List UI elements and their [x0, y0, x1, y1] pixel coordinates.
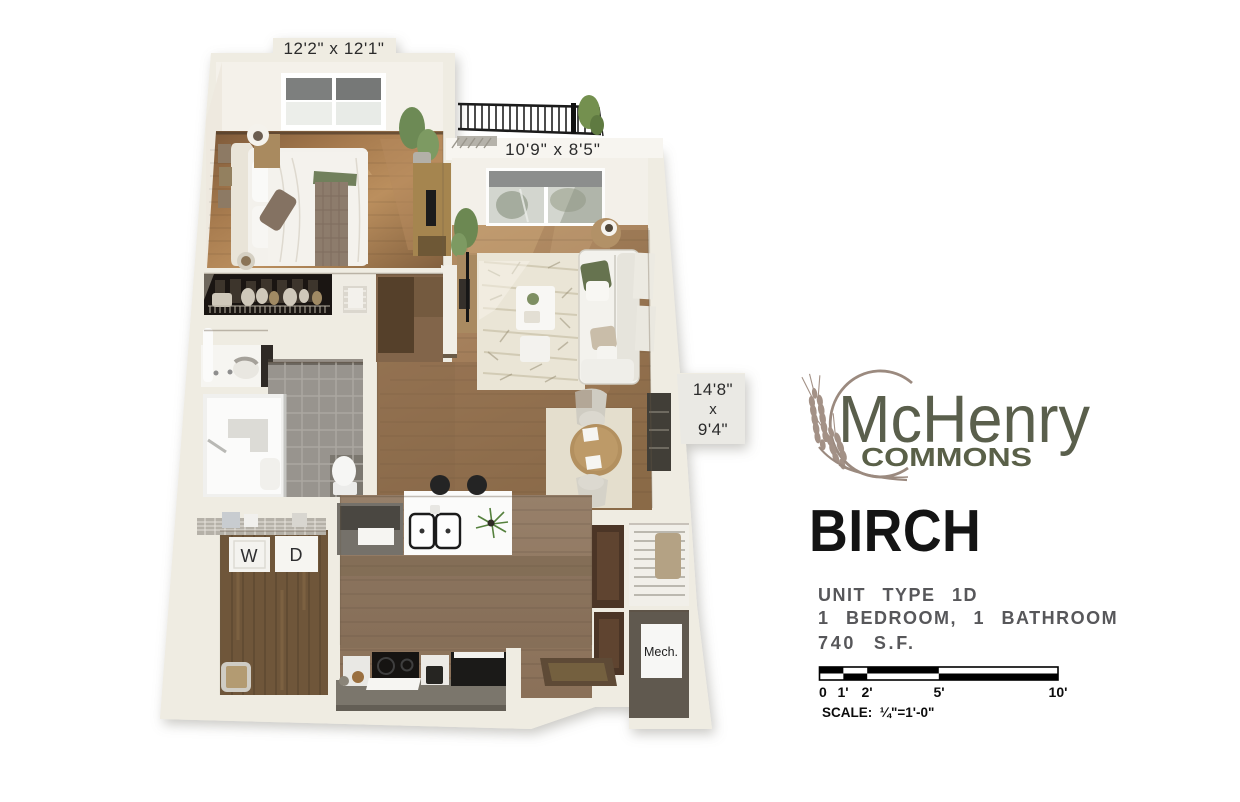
svg-text:5': 5' — [933, 684, 944, 700]
svg-text:10': 10' — [1049, 684, 1068, 700]
svg-text:W: W — [241, 546, 258, 566]
svg-text:x: x — [709, 401, 717, 418]
svg-text:0: 0 — [819, 684, 827, 700]
svg-text:14'8": 14'8" — [693, 380, 733, 399]
svg-text:COMMONS: COMMONS — [861, 442, 1032, 472]
svg-text:1': 1' — [837, 684, 848, 700]
svg-text:Mech.: Mech. — [644, 645, 678, 659]
svg-text:10'9" x 8'5": 10'9" x 8'5" — [505, 140, 601, 159]
svg-text:12'2" x 12'1": 12'2" x 12'1" — [283, 39, 384, 58]
svg-text:SCALE: ¼"=1'-0": SCALE: ¼"=1'-0" — [822, 705, 934, 720]
svg-text:D: D — [290, 545, 303, 565]
svg-text:2': 2' — [861, 684, 872, 700]
svg-text:9'4": 9'4" — [698, 420, 728, 439]
